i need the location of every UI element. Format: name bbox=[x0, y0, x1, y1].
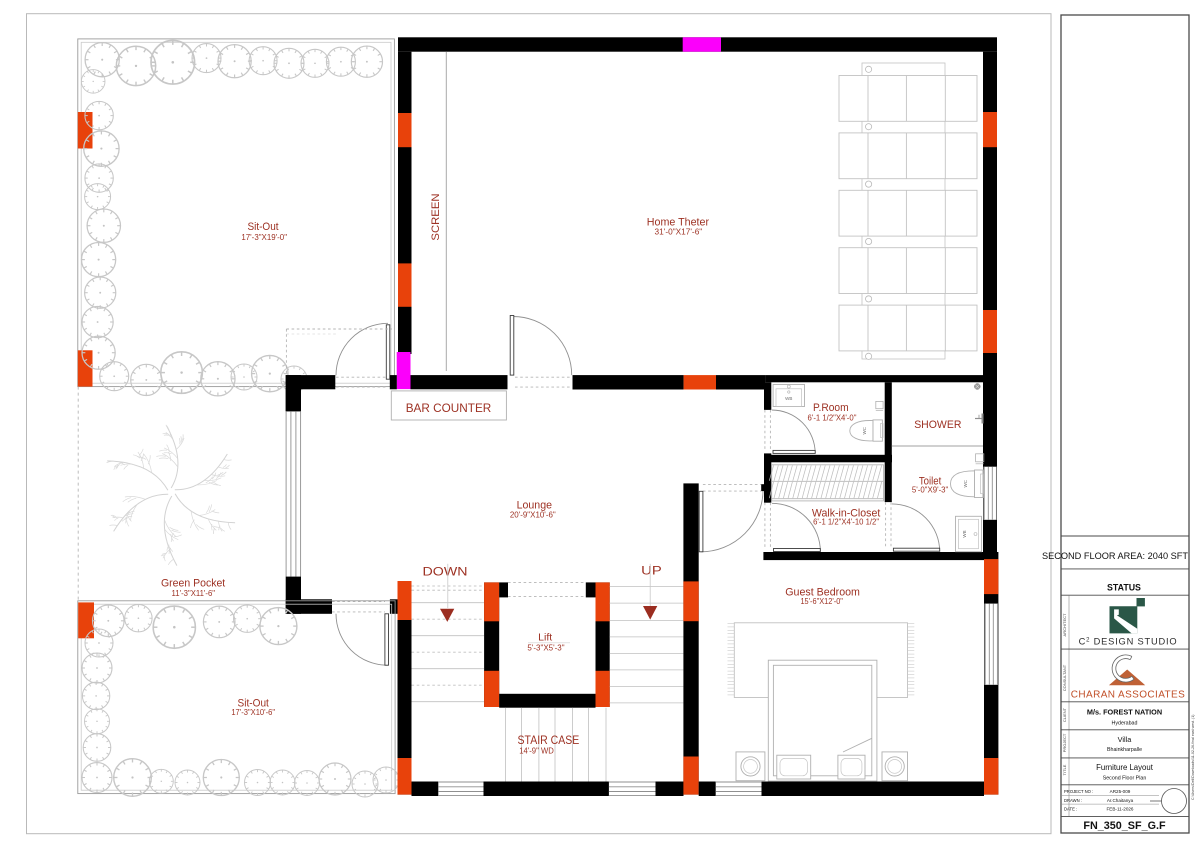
svg-text:Furniture Layout: Furniture Layout bbox=[1096, 763, 1154, 772]
svg-text:PROJECT: PROJECT bbox=[1062, 733, 1067, 752]
svg-text:BAR COUNTER: BAR COUNTER bbox=[406, 401, 492, 415]
svg-text:Second Floor Plan: Second Floor Plan bbox=[1103, 776, 1147, 782]
svg-text:CLIENT: CLIENT bbox=[1062, 707, 1067, 722]
svg-text:15'-6"X12'-0": 15'-6"X12'-0" bbox=[800, 597, 843, 606]
svg-text:20'-9"X10'-6": 20'-9"X10'-6" bbox=[510, 510, 556, 519]
svg-text:Ar.Chaitanya: Ar.Chaitanya bbox=[1107, 798, 1134, 803]
svg-text:17'-3"X19'-0": 17'-3"X19'-0" bbox=[241, 233, 287, 242]
svg-text:11'-3"X11'-6": 11'-3"X11'-6" bbox=[172, 589, 216, 598]
svg-text:14'-9" WD: 14'-9" WD bbox=[519, 747, 554, 756]
svg-text:Villa: Villa bbox=[1118, 735, 1133, 744]
svg-text:6'-1 1/2"X4'-0": 6'-1 1/2"X4'-0" bbox=[808, 414, 857, 423]
svg-text:SHOWER: SHOWER bbox=[914, 419, 961, 431]
svg-text:17'-3"X10'-6": 17'-3"X10'-6" bbox=[231, 708, 275, 717]
svg-text:STATUS: STATUS bbox=[1107, 583, 1141, 593]
svg-text:M/s. FOREST NATION: M/s. FOREST NATION bbox=[1087, 708, 1162, 717]
svg-text:Bhainkharpalle: Bhainkharpalle bbox=[1107, 747, 1142, 753]
svg-text:C2 DESIGN STUDIO: C2 DESIGN STUDIO bbox=[1079, 637, 1178, 647]
svg-text:FEB-11-2026: FEB-11-2026 bbox=[1107, 807, 1134, 812]
svg-text:DOWN: DOWN bbox=[423, 564, 468, 578]
svg-text:SECOND FLOOR AREA: 2040 SFT: SECOND FLOOR AREA: 2040 SFT bbox=[1042, 551, 1188, 561]
svg-text:SCREEN: SCREEN bbox=[430, 193, 442, 240]
svg-text:Sit-Out: Sit-Out bbox=[247, 221, 278, 233]
svg-text:PROJECT NO :: PROJECT NO : bbox=[1064, 789, 1093, 794]
svg-text:WC: WC bbox=[862, 426, 867, 434]
svg-text:DRAWN :: DRAWN : bbox=[1064, 798, 1082, 803]
svg-text:CHARAN ASSOCIATES: CHARAN ASSOCIATES bbox=[1071, 690, 1185, 701]
svg-text:DATE :: DATE : bbox=[1064, 807, 1077, 812]
svg-text:ARCHITECT: ARCHITECT bbox=[1062, 613, 1067, 636]
svg-text:CONSULTANT: CONSULTANT bbox=[1062, 664, 1067, 691]
svg-text:Green Pocket: Green Pocket bbox=[161, 578, 226, 590]
svg-text:STAIR CASE: STAIR CASE bbox=[518, 733, 580, 747]
svg-text:P.Room: P.Room bbox=[813, 402, 849, 414]
svg-text:C:\Users\Dell\Downloads\11-02-: C:\Users\Dell\Downloads\11-02-26-final e… bbox=[1191, 715, 1195, 800]
svg-text:Lift: Lift bbox=[538, 633, 552, 644]
svg-text:6'-1 1/2"X4'-10 1/2": 6'-1 1/2"X4'-10 1/2" bbox=[813, 518, 879, 527]
svg-text:5'-0"X9'-3": 5'-0"X9'-3" bbox=[912, 486, 949, 495]
svg-text:WC: WC bbox=[963, 479, 968, 487]
svg-text:AR25-009: AR25-009 bbox=[1110, 789, 1131, 794]
svg-text:31'-0"X17'-6": 31'-0"X17'-6" bbox=[655, 228, 703, 237]
svg-text:Hyderabad: Hyderabad bbox=[1112, 721, 1138, 727]
svg-text:WB: WB bbox=[962, 530, 967, 537]
svg-text:5'-3"X5'-3": 5'-3"X5'-3" bbox=[527, 643, 564, 652]
svg-text:UP: UP bbox=[641, 563, 662, 577]
svg-text:WB: WB bbox=[785, 396, 792, 401]
svg-text:FN_350_SF_G.F: FN_350_SF_G.F bbox=[1083, 820, 1166, 832]
svg-text:TITLE: TITLE bbox=[1062, 764, 1067, 775]
